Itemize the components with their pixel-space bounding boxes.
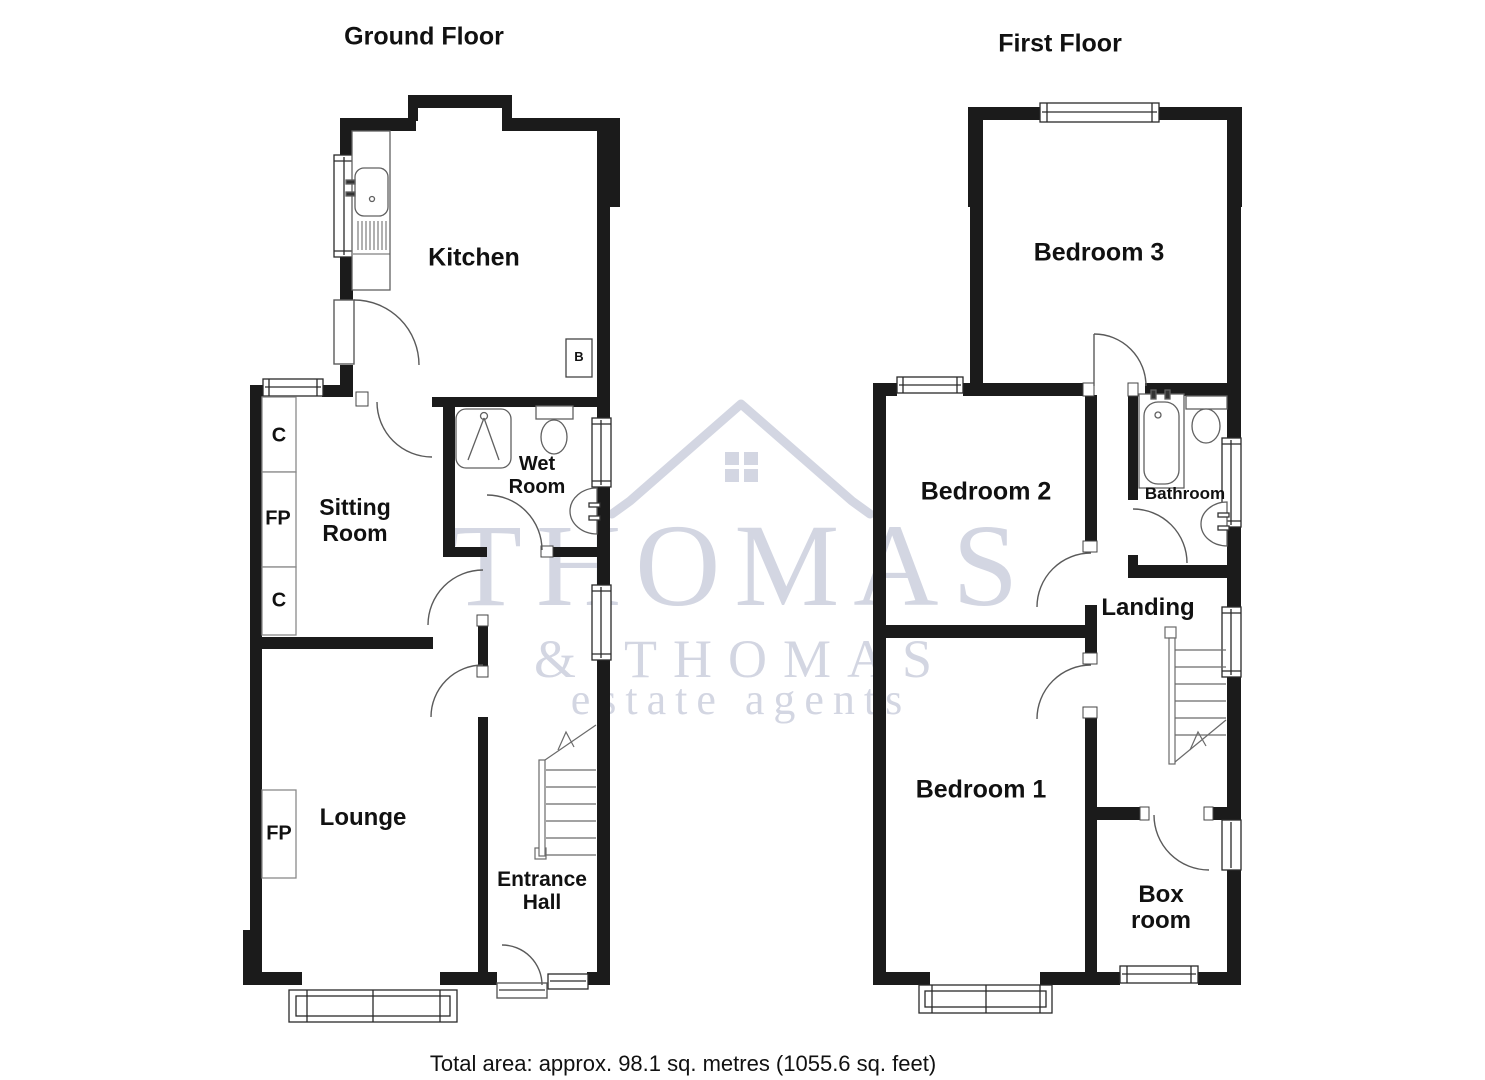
window-icon	[592, 418, 611, 487]
stairs-icon	[1165, 627, 1226, 764]
window-icon	[1120, 966, 1198, 983]
ground-floor-title: Ground Floor	[344, 24, 504, 51]
door-swing-icon	[334, 300, 419, 365]
window-icon	[548, 974, 588, 989]
door-swing-icon	[428, 570, 483, 625]
room-label-bedroom2: Bedroom 2	[921, 479, 1052, 506]
ground-walls	[243, 95, 620, 985]
window-icon	[1222, 820, 1241, 870]
room-label-bedroom3: Bedroom 3	[1034, 240, 1165, 267]
room-label-box-room: Boxroom	[1131, 882, 1191, 934]
wash-basin-icon	[1201, 502, 1229, 546]
cupboard-label-top: C	[272, 425, 286, 448]
room-label-kitchen: Kitchen	[428, 245, 520, 272]
first-floor-title: First Floor	[998, 31, 1122, 58]
door-swing-icon	[1133, 509, 1187, 563]
window-icon	[592, 585, 611, 660]
shower-tray-icon	[456, 409, 511, 468]
fireplace-label-lounge: FP	[266, 823, 292, 846]
boiler-label: B	[574, 350, 583, 364]
window-icon	[263, 379, 323, 396]
bay-window-icon	[919, 985, 1052, 1013]
room-label-lounge: Lounge	[320, 805, 407, 831]
kitchen-counter	[346, 131, 390, 290]
front-door-icon	[497, 945, 547, 998]
bath-icon	[1139, 390, 1184, 488]
stairs-icon	[535, 725, 596, 859]
window-icon	[897, 377, 963, 393]
bay-window-icon	[289, 990, 457, 1022]
floorplan-canvas	[0, 0, 1485, 1080]
cupboard-label-bottom: C	[272, 590, 286, 613]
door-swing-icon	[1154, 815, 1209, 870]
room-label-entrance-hall: EntranceHall	[497, 868, 587, 914]
window-icon	[334, 155, 354, 257]
toilet-icon	[536, 406, 573, 454]
door-swing-icon	[1094, 334, 1146, 386]
door-swing-icon	[377, 402, 432, 457]
room-label-bathroom: Bathroom	[1145, 485, 1225, 503]
door-swing-icon	[431, 665, 483, 717]
room-label-bedroom1: Bedroom 1	[916, 777, 1047, 804]
total-area-text: Total area: approx. 98.1 sq. metres (105…	[430, 1051, 936, 1077]
room-label-landing: Landing	[1101, 595, 1194, 621]
room-label-wet-room: WetRoom	[509, 453, 566, 499]
fireplace-label-sitting: FP	[265, 508, 291, 531]
room-label-sitting-room: SittingRoom	[319, 494, 391, 546]
toilet-icon	[1186, 396, 1227, 443]
window-icon	[1040, 103, 1159, 122]
wash-basin-icon	[570, 488, 600, 534]
floorplan-page: THOMAS &THOMAS estate agents	[0, 0, 1485, 1080]
door-swing-icon	[487, 495, 542, 550]
door-swing-icon	[1037, 553, 1091, 607]
